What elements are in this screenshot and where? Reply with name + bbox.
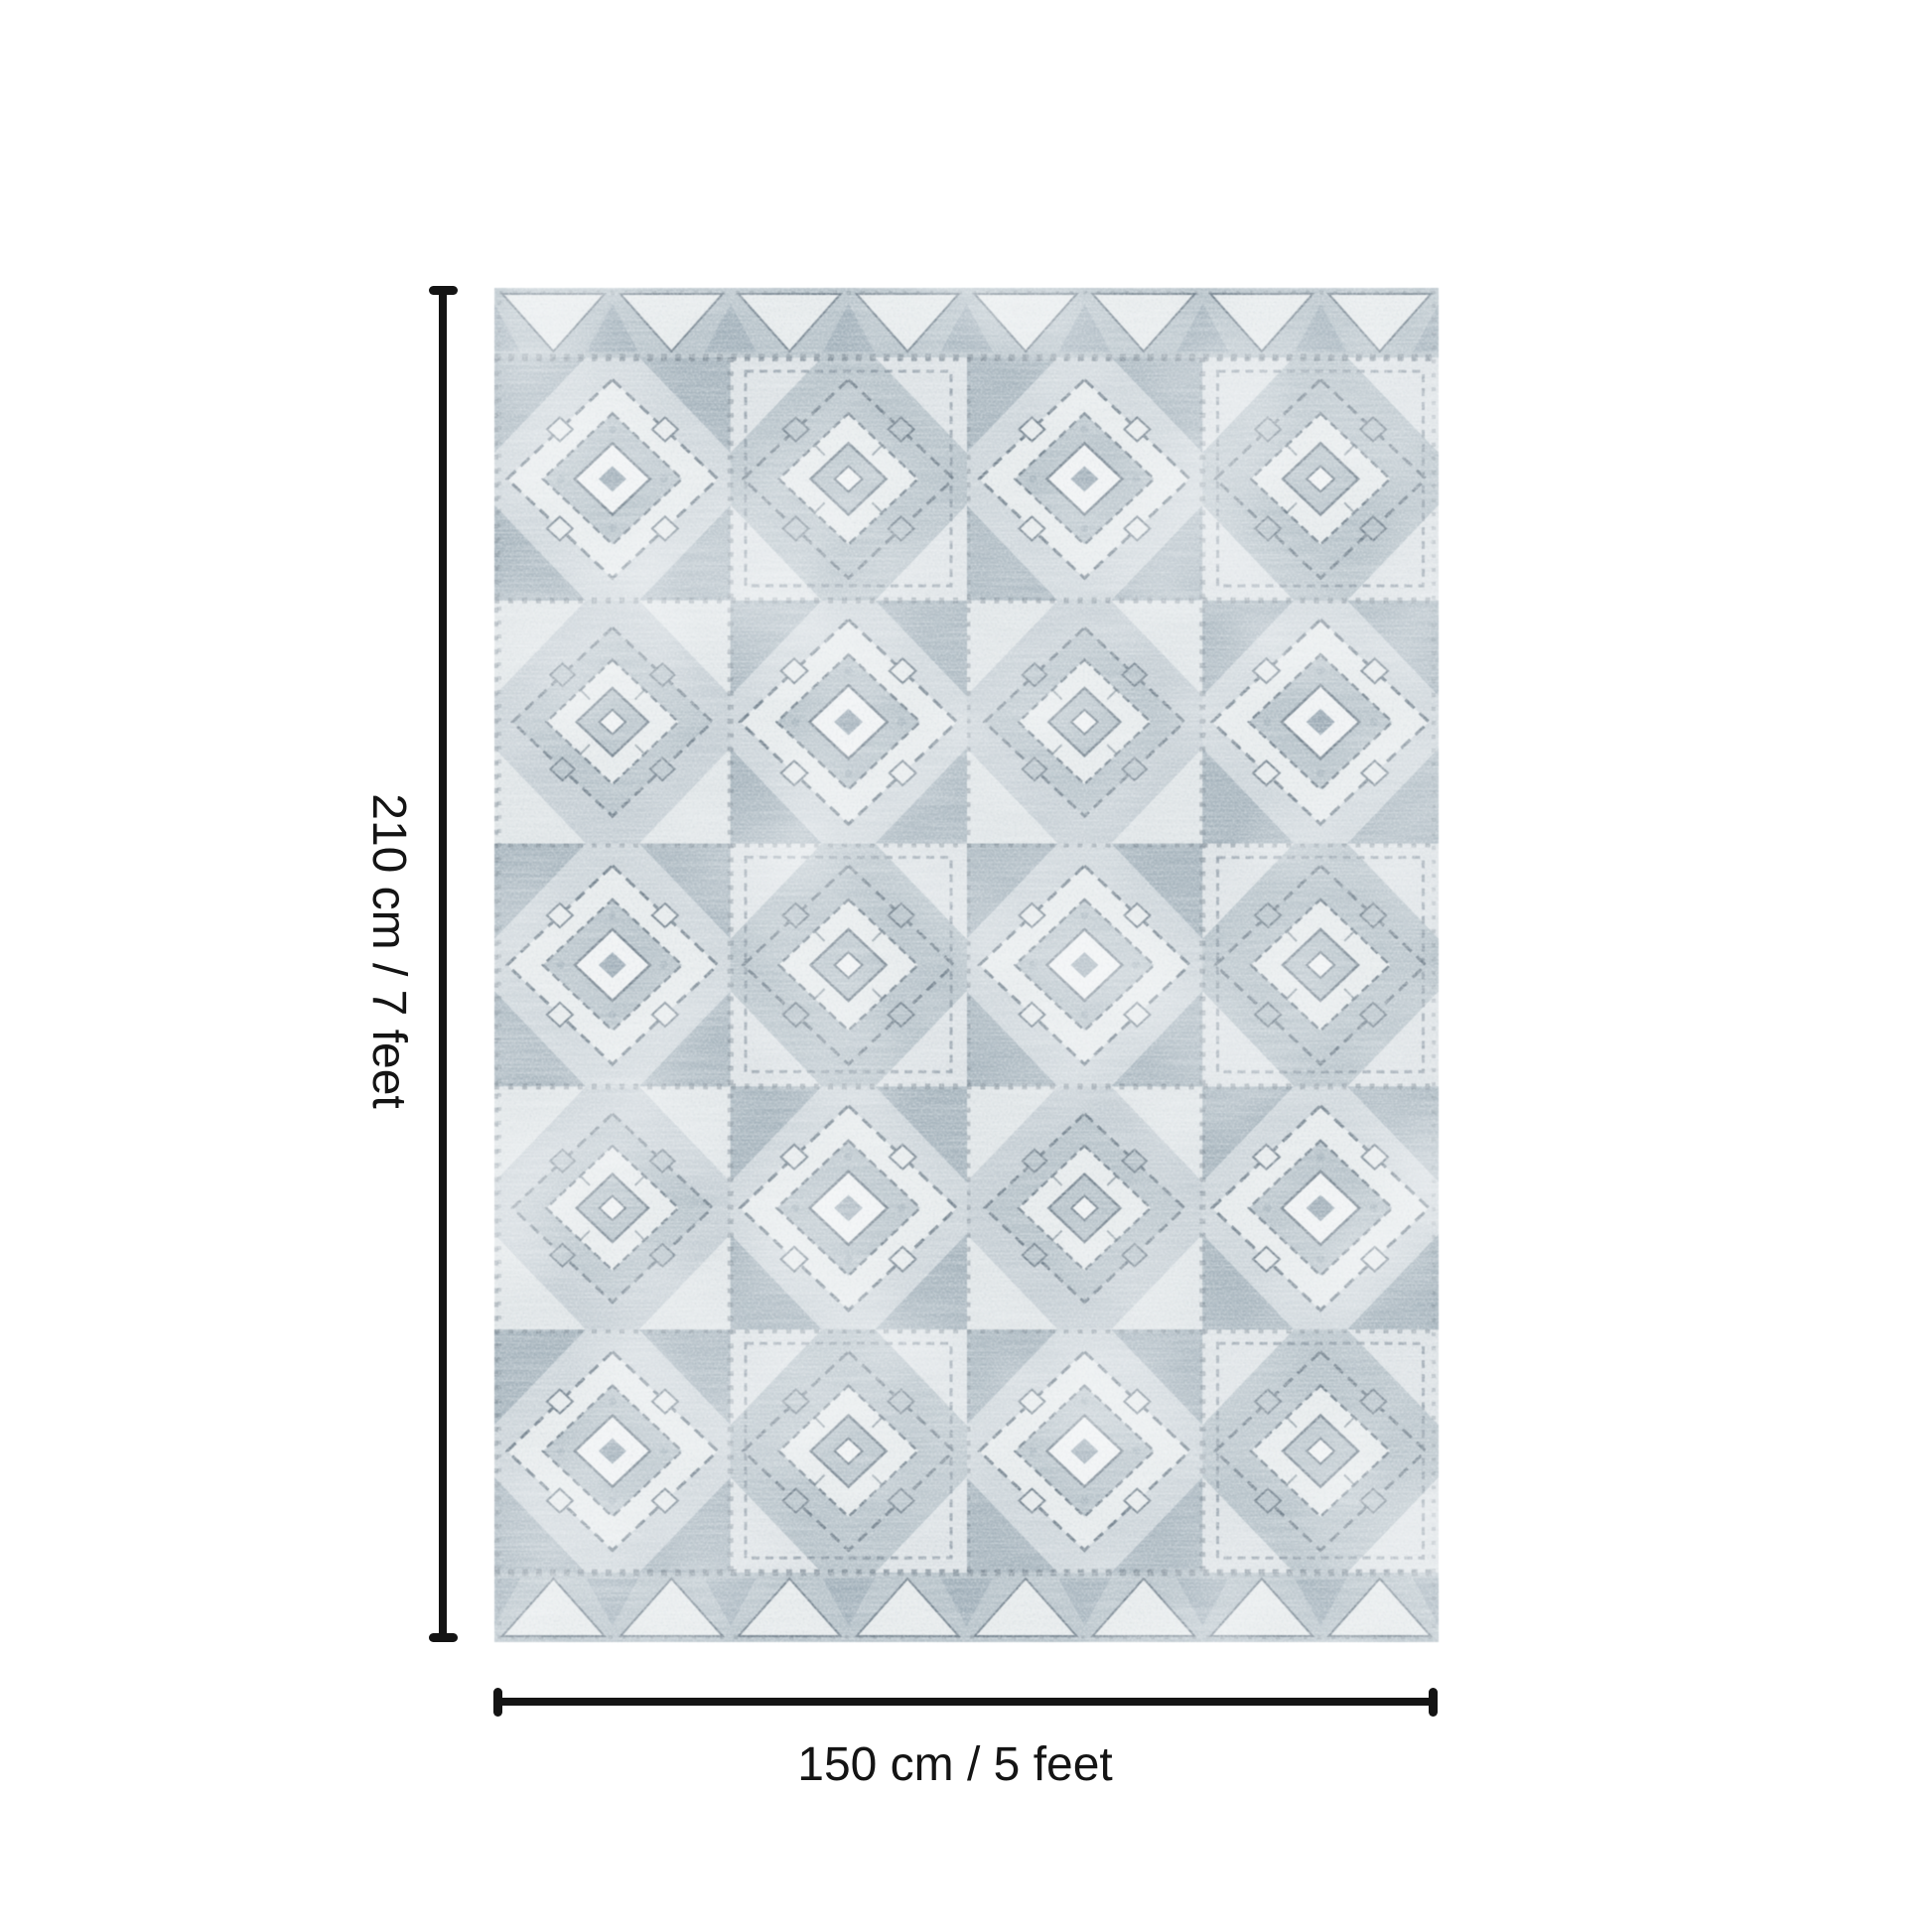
width-dimension-label: 150 cm / 5 feet	[797, 1741, 1113, 1789]
height-dimension-label: 210 cm / 7 feet	[364, 793, 412, 1109]
height-dimension-line	[439, 291, 447, 1638]
width-dimension-line	[498, 1698, 1435, 1706]
rug-image	[494, 288, 1439, 1642]
height-dimension-cap-bottom	[429, 1633, 458, 1642]
product-dimension-diagram: 210 cm / 7 feet 150 cm / 5 feet	[0, 0, 1932, 1932]
width-dimension-cap-right	[1429, 1688, 1438, 1717]
